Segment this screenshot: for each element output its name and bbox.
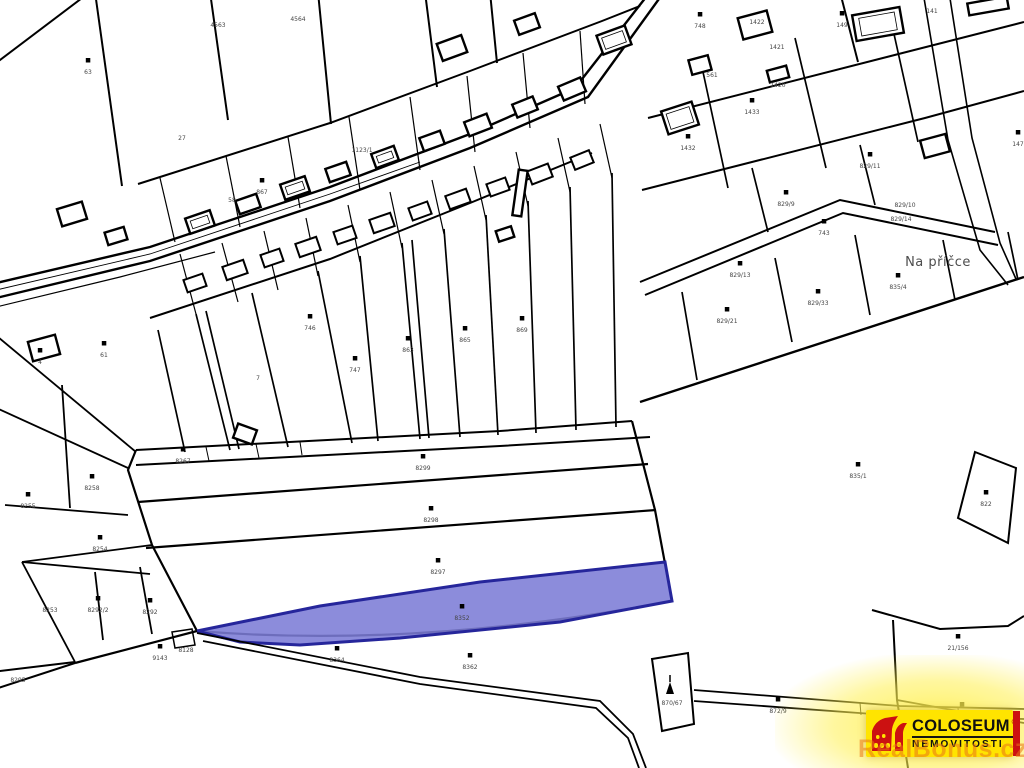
parcel-number: 4563 bbox=[210, 22, 225, 29]
parcel-number: 141 bbox=[926, 8, 938, 15]
parcel-marker bbox=[353, 356, 358, 361]
parcel-number: 7 bbox=[256, 375, 260, 382]
parcel-number: 149 bbox=[836, 22, 848, 29]
parcel-marker bbox=[98, 535, 103, 540]
parcel-number: 1421 bbox=[769, 44, 784, 51]
parcel-number: 1433 bbox=[744, 109, 759, 116]
parcel-marker bbox=[896, 273, 901, 278]
cadastral-map-screenshot: 8299829882978352835/1822829/21829/33835/… bbox=[0, 0, 1024, 768]
parcel-number: 872/9 bbox=[769, 708, 786, 715]
parcel-marker bbox=[86, 58, 91, 63]
parcel-marker bbox=[725, 307, 730, 312]
parcel-number: 865 bbox=[459, 337, 471, 344]
parcel-number: 829/10 bbox=[894, 202, 915, 209]
parcel-marker bbox=[784, 190, 789, 195]
parcel-marker bbox=[335, 646, 340, 651]
parcel-marker bbox=[90, 474, 95, 479]
parcel-marker bbox=[468, 653, 473, 658]
parcel-number: 21/156 bbox=[947, 645, 968, 652]
parcel-number: 8292/2 bbox=[87, 607, 108, 614]
parcel-marker bbox=[148, 598, 153, 603]
parcel-marker bbox=[158, 644, 163, 649]
parcel-number: 8299 bbox=[415, 465, 430, 472]
parcel-number: 4564 bbox=[290, 16, 305, 23]
parcel-number: 8258 bbox=[84, 485, 99, 492]
parcel-number: 829/21 bbox=[716, 318, 737, 325]
parcel-marker bbox=[26, 492, 31, 497]
parcel-marker bbox=[750, 98, 755, 103]
parcel-marker bbox=[956, 634, 961, 639]
parcel-number: 561 bbox=[706, 72, 718, 79]
parcel-marker bbox=[181, 447, 186, 452]
parcel-number: 1123/1 bbox=[351, 147, 372, 154]
parcel-number: 8364 bbox=[329, 657, 344, 664]
parcel-marker bbox=[984, 490, 989, 495]
parcel-number: 822 bbox=[980, 501, 992, 508]
parcel-marker bbox=[1016, 130, 1021, 135]
parcel-marker bbox=[960, 702, 965, 707]
parcel-marker bbox=[463, 326, 468, 331]
parcel-number: 8254 bbox=[92, 546, 107, 553]
parcel-marker bbox=[520, 316, 525, 321]
field-top-path bbox=[136, 421, 650, 465]
parcel-number: 8267 bbox=[175, 458, 190, 465]
parcel-number: 829/14 bbox=[890, 216, 911, 223]
parcel-marker bbox=[102, 341, 107, 346]
parcel-marker bbox=[776, 697, 781, 702]
parcel-number: 863 bbox=[402, 347, 414, 354]
agency-logo: COLOSEUM ® NEMOVITOSTI bbox=[866, 710, 1013, 757]
parcel-number: 743 bbox=[818, 230, 830, 237]
parcel-marker bbox=[436, 558, 441, 563]
chapel-symbol bbox=[666, 675, 674, 694]
parcel-number: 8297 bbox=[430, 569, 445, 576]
parcel-number: 58 bbox=[228, 197, 236, 204]
map-canvas: 8299829882978352835/1822829/21829/33835/… bbox=[0, 0, 1024, 768]
upper-parcel-boundaries bbox=[0, 0, 640, 242]
parcel-number: 8253 bbox=[42, 607, 57, 614]
parcel-marker bbox=[429, 506, 434, 511]
parcel-number: 1432 bbox=[680, 145, 695, 152]
parcel-number: 829/13 bbox=[729, 272, 750, 279]
parcel-number: 8292 bbox=[142, 609, 157, 616]
parcel-number: 8362 bbox=[462, 664, 477, 671]
parcel-marker bbox=[856, 462, 861, 467]
parcel-marker bbox=[840, 11, 845, 16]
parcel-marker bbox=[38, 348, 43, 353]
parcel-marker bbox=[822, 219, 827, 224]
parcel-number: 8295 bbox=[10, 677, 25, 684]
parcel-marker bbox=[738, 261, 743, 266]
logo-brand-text: COLOSEUM bbox=[912, 718, 1010, 735]
parcel-number: 870/67 bbox=[661, 700, 682, 707]
parcel-marker bbox=[816, 289, 821, 294]
logo-red-bar bbox=[1013, 711, 1020, 756]
parcel-number: 748 bbox=[694, 23, 706, 30]
parcel-marker bbox=[698, 12, 703, 17]
parcel-number: 8352 bbox=[454, 615, 469, 622]
parcel-number: 829/33 bbox=[807, 300, 828, 307]
parcel-marker bbox=[96, 596, 101, 601]
parcel-number: 9143 bbox=[152, 655, 167, 662]
parcel-marker bbox=[406, 336, 411, 341]
parcel-marker bbox=[868, 152, 873, 157]
parcel-number: 746 bbox=[304, 325, 316, 332]
parcel-number: 61 bbox=[100, 352, 108, 359]
road-lines bbox=[0, 0, 664, 308]
parcel-marker bbox=[686, 134, 691, 139]
parcel-marker bbox=[260, 178, 265, 183]
parcel-number: 8298 bbox=[423, 517, 438, 524]
parcel-number: 829/11 bbox=[859, 163, 880, 170]
right-parcel-grid bbox=[640, 0, 1024, 543]
parcel-number: 147 bbox=[1012, 141, 1024, 148]
parcel-number: 835/1 bbox=[849, 473, 866, 480]
colosseum-icon bbox=[869, 715, 909, 753]
area-name-label: Na příčce bbox=[905, 255, 971, 270]
parcel-number: 869 bbox=[516, 327, 528, 334]
parcel-number: 1422 bbox=[749, 19, 764, 26]
parcel-number: 4 bbox=[38, 359, 42, 366]
parcel-number: 835/4 bbox=[889, 284, 906, 291]
parcel-number: 8255 bbox=[20, 503, 35, 510]
buildings bbox=[28, 0, 1009, 444]
parcel-number: 1420 bbox=[770, 82, 785, 89]
parcel-number: 867 bbox=[256, 189, 268, 196]
parcel-number: 747 bbox=[349, 367, 361, 374]
parcel-number: 27 bbox=[178, 135, 186, 142]
logo-subtitle-text: NEMOVITOSTI bbox=[912, 739, 1018, 750]
parcel-marker bbox=[308, 314, 313, 319]
parcel-number: 829/9 bbox=[777, 201, 794, 208]
parcel-number: 63 bbox=[84, 69, 92, 76]
parcel-marker bbox=[421, 454, 426, 459]
parcel-number: 8128 bbox=[178, 647, 193, 654]
parcel-marker bbox=[460, 604, 465, 609]
